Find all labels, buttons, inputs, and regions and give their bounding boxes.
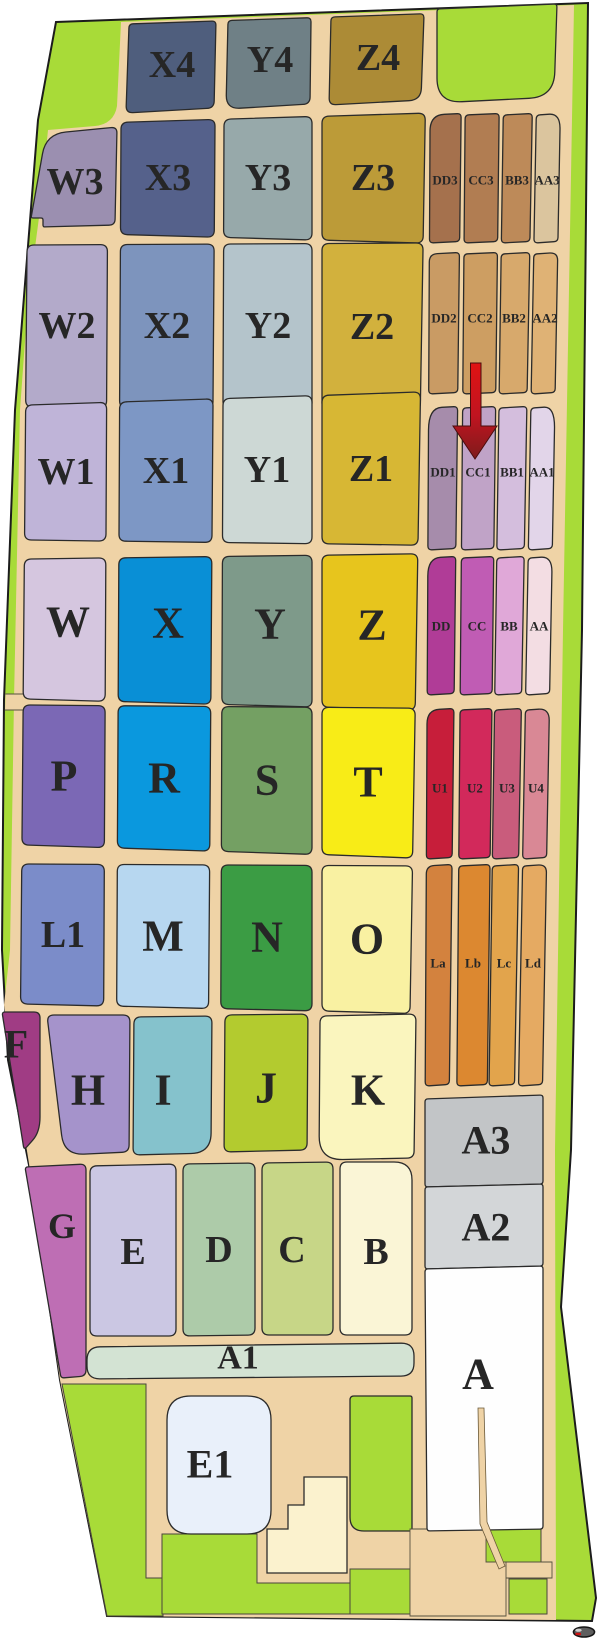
svg-text:W2: W2 xyxy=(39,305,96,347)
svg-text:N: N xyxy=(251,913,283,962)
svg-text:K: K xyxy=(351,1066,385,1115)
svg-text:Z: Z xyxy=(357,601,386,650)
svg-text:Lc: Lc xyxy=(497,956,512,971)
svg-text:Z1: Z1 xyxy=(349,448,393,490)
svg-text:U3: U3 xyxy=(499,781,515,796)
svg-text:A: A xyxy=(462,1350,494,1399)
svg-text:Y4: Y4 xyxy=(247,39,293,81)
svg-text:W3: W3 xyxy=(47,161,104,203)
svg-text:Z3: Z3 xyxy=(351,157,395,199)
svg-text:DD3: DD3 xyxy=(432,173,458,188)
svg-text:BB2: BB2 xyxy=(502,311,526,326)
svg-text:X2: X2 xyxy=(144,305,190,347)
svg-text:AA2: AA2 xyxy=(532,311,557,326)
svg-text:BB3: BB3 xyxy=(505,173,529,188)
svg-text:X3: X3 xyxy=(145,157,191,199)
svg-text:S: S xyxy=(255,756,279,805)
svg-text:A3: A3 xyxy=(462,1118,511,1163)
svg-text:BB1: BB1 xyxy=(500,465,524,480)
svg-text:L1: L1 xyxy=(41,914,85,956)
svg-text:Z4: Z4 xyxy=(356,37,400,79)
svg-text:Y3: Y3 xyxy=(245,157,291,199)
svg-text:W1: W1 xyxy=(38,451,95,493)
svg-text:X: X xyxy=(152,599,184,648)
svg-text:A2: A2 xyxy=(462,1205,511,1250)
svg-text:AA: AA xyxy=(530,619,549,634)
svg-text:BB: BB xyxy=(500,619,518,634)
svg-text:Lb: Lb xyxy=(465,956,481,971)
svg-text:C: C xyxy=(278,1229,305,1271)
svg-text:CC1: CC1 xyxy=(465,465,490,480)
svg-text:La: La xyxy=(430,956,446,971)
svg-text:CC3: CC3 xyxy=(468,173,494,188)
svg-text:DD2: DD2 xyxy=(431,311,456,326)
svg-text:H: H xyxy=(71,1066,105,1115)
svg-text:DD: DD xyxy=(432,619,451,634)
svg-text:CC2: CC2 xyxy=(467,311,492,326)
svg-text:M: M xyxy=(142,912,184,961)
svg-text:D: D xyxy=(205,1229,232,1271)
svg-text:P: P xyxy=(51,752,78,801)
svg-text:Z2: Z2 xyxy=(350,306,394,348)
svg-text:R: R xyxy=(148,754,181,803)
svg-text:G: G xyxy=(48,1206,76,1246)
svg-text:U1: U1 xyxy=(432,781,448,796)
svg-text:U4: U4 xyxy=(528,781,544,796)
svg-text:Y2: Y2 xyxy=(245,305,291,347)
svg-text:CC: CC xyxy=(468,619,487,634)
svg-text:DD1: DD1 xyxy=(430,465,455,480)
svg-text:T: T xyxy=(353,758,382,807)
svg-text:Ld: Ld xyxy=(525,956,542,971)
svg-text:AA3: AA3 xyxy=(534,173,560,188)
svg-text:X4: X4 xyxy=(149,44,195,86)
svg-text:A1: A1 xyxy=(217,1340,259,1377)
svg-text:O: O xyxy=(350,915,384,964)
svg-text:F: F xyxy=(4,1022,28,1067)
svg-text:W: W xyxy=(46,598,90,647)
svg-text:AA1: AA1 xyxy=(529,465,554,480)
svg-text:I: I xyxy=(154,1066,171,1115)
svg-text:Y1: Y1 xyxy=(244,449,290,491)
svg-text:X1: X1 xyxy=(143,450,189,492)
svg-text:B: B xyxy=(363,1231,388,1273)
svg-text:E: E xyxy=(120,1231,145,1273)
svg-text:J: J xyxy=(255,1064,277,1113)
svg-text:U2: U2 xyxy=(467,781,483,796)
svg-text:E1: E1 xyxy=(187,1442,234,1487)
svg-text:Y: Y xyxy=(254,600,286,649)
